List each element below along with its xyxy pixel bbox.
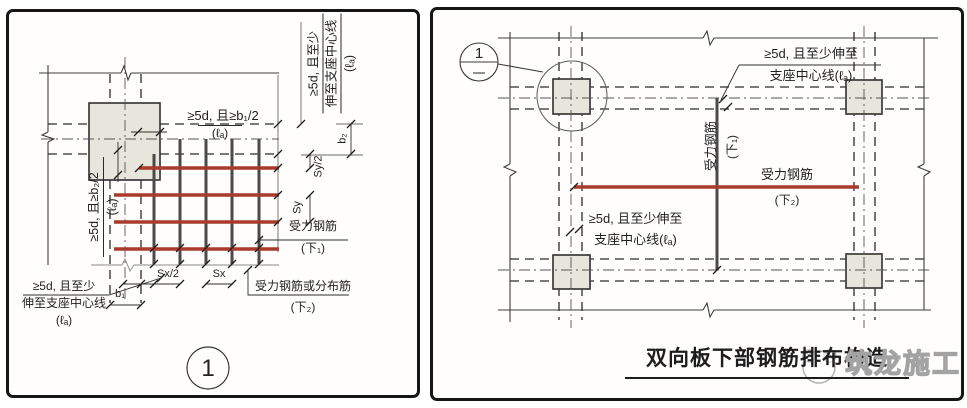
anchor-note-left-text: ≥5d, 且≥b₂/2: [86, 157, 104, 257]
bubble-number: 1: [467, 45, 491, 64]
column-top-left: [553, 79, 590, 114]
panel-left-detail: ≥5d, 且≥b₁/2 (ℓₐ) ≥5d, 且≥b₂/2 (ℓₐ) ≥5d, 且…: [6, 9, 420, 398]
anchor-note-left-la: (ℓₐ): [104, 157, 121, 257]
rebar-main-label: 受力钢筋: [269, 219, 357, 234]
dim-sx: Sx: [199, 268, 239, 282]
anchor-note-top-line1: ≥5d, 且至少伸至: [741, 46, 881, 62]
anchor-note-top-line2: 支座中心线(ℓₐ): [741, 68, 881, 84]
column-bottom-left: [553, 255, 590, 289]
rebar-dist-label: 受力钢筋或分布筋: [241, 279, 365, 294]
anchor-note-bottom: ≥5d, 且至少 伸至支座中心线 (ℓₐ): [11, 278, 117, 329]
anchor-note-top: ≥5d, 且≥b₁/2: [159, 108, 287, 124]
hbar-sub: (下₂): [737, 193, 837, 208]
anchor-note-mid-line1: ≥5d, 且至少伸至: [563, 211, 708, 227]
anchor-note-right-line1: ≥5d, 且至少: [306, 14, 324, 114]
panel-right-plan: 1 ≥5d, 且至少伸至 支座中心线(ℓₐ) 受力钢筋 (下₁) 受力钢筋 (下…: [430, 7, 964, 401]
hbar-label: 受力钢筋: [737, 167, 837, 183]
anchor-note-right: ≥5d, 且至少 伸至支座中心线 (ℓₐ): [306, 14, 357, 114]
anchor-note-top-la: (ℓₐ): [198, 125, 242, 141]
anchor-note-bottom-la: (ℓₐ): [11, 312, 117, 329]
anchor-note-right-line2: 伸至支座中心线: [324, 14, 342, 114]
detail-number: 1: [192, 354, 224, 384]
screenshot-root: ≥5d, 且≥b₁/2 (ℓₐ) ≥5d, 且≥b₂/2 (ℓₐ) ≥5d, 且…: [0, 0, 967, 408]
dim-sy-half: Sy/2: [313, 149, 330, 185]
rebar-main-sub: (下₁): [269, 241, 357, 256]
anchor-note-mid-line2: 支座中心线(ℓₐ): [563, 232, 708, 248]
anchor-note-right-la: (ℓₐ): [342, 14, 359, 114]
rebar-dark-vertical: [154, 139, 259, 264]
vbar-label: 受力钢筋: [700, 106, 716, 186]
rebar-dist-sub: (下₂): [241, 300, 365, 315]
anchor-note-left: ≥5d, 且≥b₂/2 (ℓₐ): [86, 157, 122, 257]
dim-b2: b₂: [337, 121, 354, 157]
dim-sy: Sy: [292, 190, 309, 226]
dim-sx-half: Sx/2: [147, 268, 189, 282]
dim-b1: b₁: [102, 288, 138, 302]
right-drawing: [433, 10, 961, 398]
watermark-text: 筑龙施工: [833, 348, 967, 382]
